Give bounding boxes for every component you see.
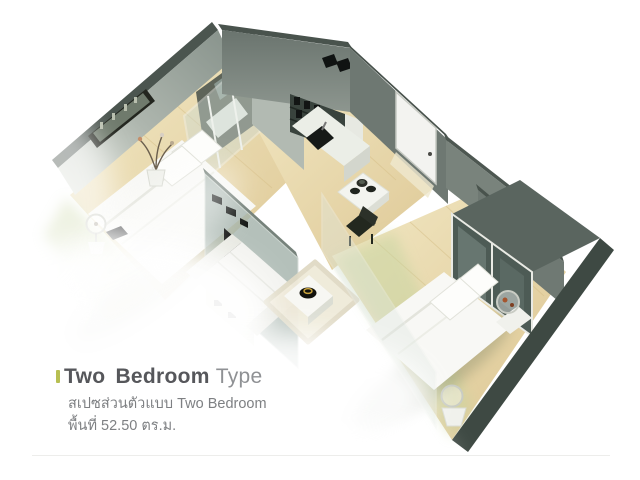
plan-subtitle-thai: สเปซส่วนตัวแบบ Two Bedroom [68, 395, 267, 413]
dinner-plate [366, 186, 376, 192]
door-handle [428, 152, 432, 156]
lamp-deco [510, 303, 514, 307]
plan-title: Two BedroomType [56, 366, 267, 388]
caption-block: Two BedroomType สเปซส่วนตัวแบบ Two Bedro… [56, 366, 267, 435]
flower-vase [147, 170, 165, 186]
accent-tick [56, 370, 60, 383]
lamp-deco [503, 298, 508, 303]
plan-title-suffix: Type [216, 365, 263, 388]
flower-blossom [160, 133, 164, 137]
pot-lid [359, 180, 365, 184]
wire-lamp [497, 291, 519, 313]
floorplan-card: Two BedroomType สเปซส่วนตัวแบบ Two Bedro… [0, 0, 640, 480]
plan-title-main: Two Bedroom [64, 365, 210, 388]
dinner-plate [350, 188, 360, 194]
bottom-divider-line [32, 455, 610, 456]
flower-blossom [170, 141, 174, 145]
plan-area-thai: พื้นที่ 52.50 ตร.ม. [68, 417, 267, 435]
wire-lamp [442, 386, 463, 407]
flower-blossom [138, 137, 142, 141]
